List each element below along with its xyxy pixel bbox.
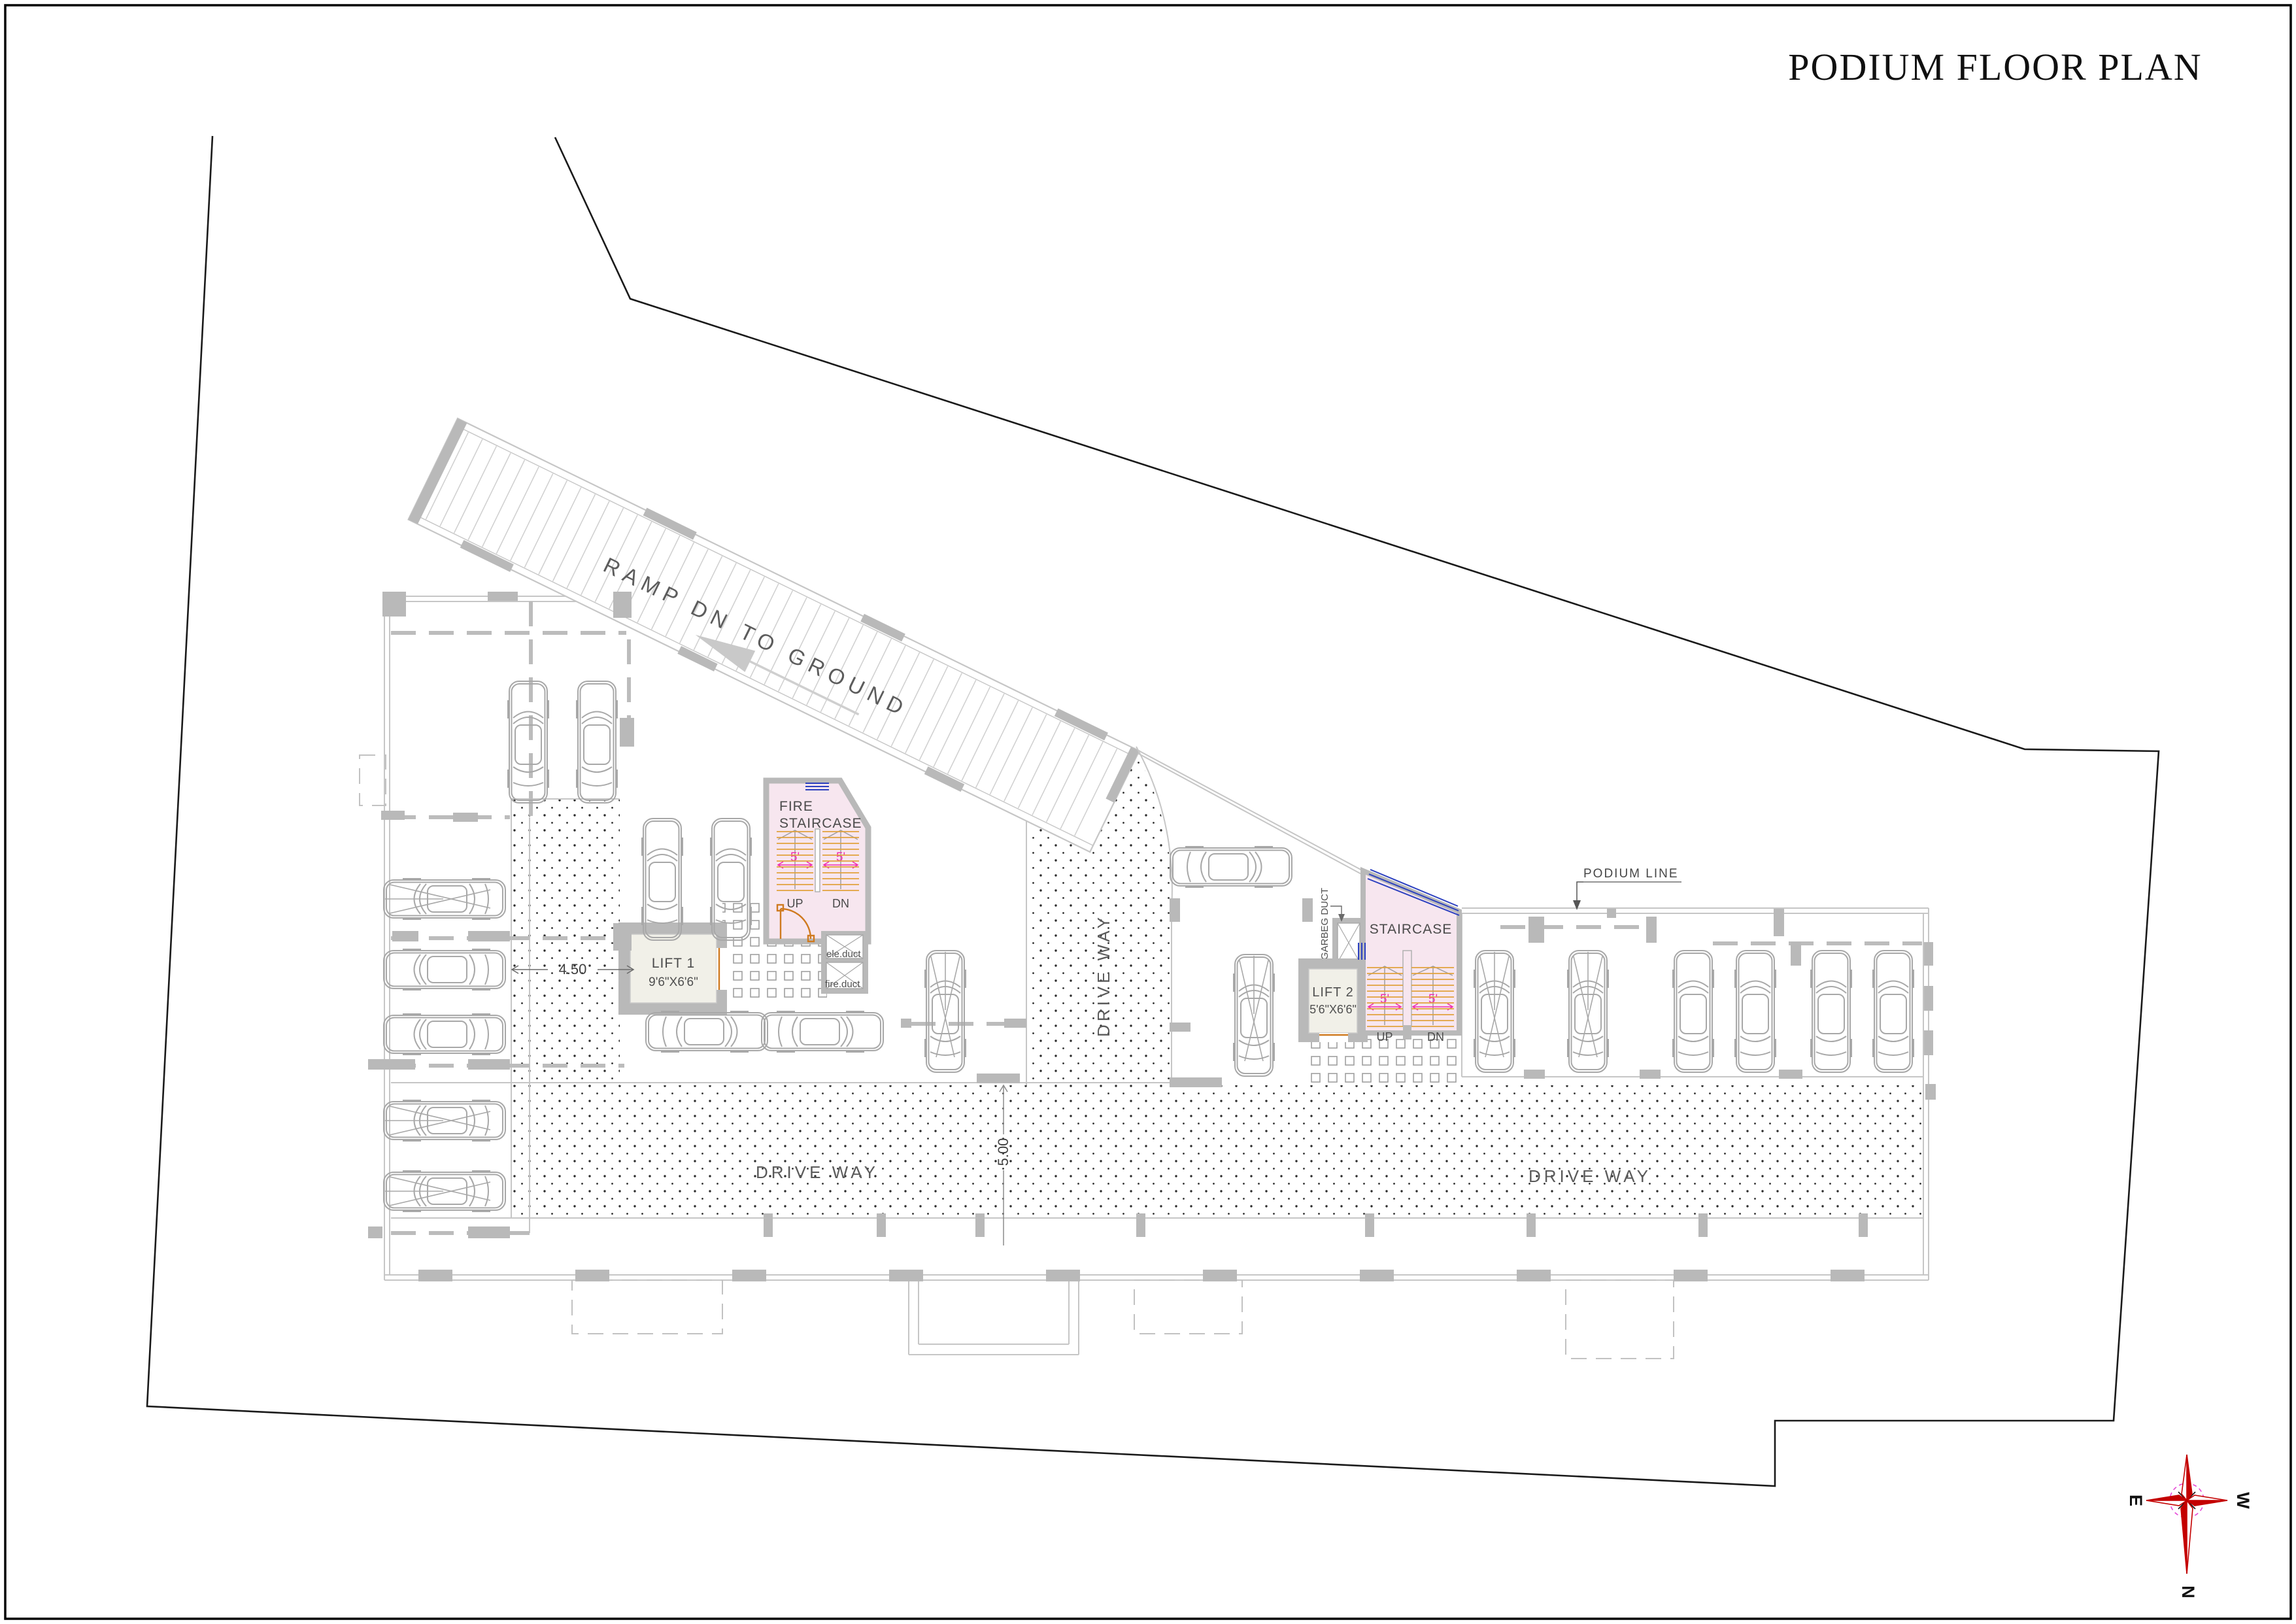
column <box>468 931 510 941</box>
fire-staircase-dn: DN <box>832 897 849 910</box>
column <box>1170 898 1180 922</box>
driveway-width-value: 5.00 <box>995 1138 1011 1166</box>
fire-duct-label: fire.duct <box>825 979 860 990</box>
staircase-flight-right: 5' <box>1428 992 1438 1006</box>
staircase-flight-left: 5' <box>1380 992 1389 1006</box>
column <box>381 811 405 820</box>
column <box>1517 1270 1551 1281</box>
driveway-label-bottom-right: DRIVE WAY <box>1528 1166 1651 1186</box>
column <box>418 1270 452 1281</box>
column <box>901 1019 911 1028</box>
column <box>1524 1070 1545 1079</box>
column <box>468 1226 510 1238</box>
column <box>368 1226 382 1238</box>
column <box>1365 1213 1374 1237</box>
column <box>732 1270 766 1281</box>
lift2-label: LIFT 2 <box>1312 985 1353 1000</box>
column <box>1640 1070 1661 1079</box>
column <box>382 592 406 617</box>
garbage-duct-label: GARBEG DUCT <box>1319 888 1330 960</box>
column <box>1646 917 1657 943</box>
column <box>613 923 632 951</box>
column <box>1774 909 1784 936</box>
fire-staircase-flight-right: 5' <box>836 851 845 864</box>
lift-2: LIFT 2 5'6"X6'6" <box>1298 958 1368 1042</box>
lift2-size: 5'6"X6'6" <box>1309 1003 1357 1016</box>
column <box>468 1059 510 1070</box>
column <box>620 718 634 747</box>
column <box>1046 1270 1080 1281</box>
floor-plan-canvas: PODIUM FLOOR PLAN <box>0 0 2296 1624</box>
column <box>392 931 418 941</box>
column <box>1004 1019 1026 1028</box>
lift1-size: 9'6"X6'6" <box>649 975 698 989</box>
lift1-label: LIFT 1 <box>652 956 695 971</box>
column <box>1203 1270 1237 1281</box>
column <box>975 1213 985 1237</box>
column <box>877 1213 886 1237</box>
fire-staircase-label-2: STAIRCASE <box>779 816 862 831</box>
column <box>1136 1213 1145 1237</box>
staircase-dn: DN <box>1427 1030 1444 1043</box>
compass-east: E <box>2126 1495 2146 1506</box>
column <box>1607 909 1616 918</box>
column <box>488 592 518 601</box>
column <box>977 1074 1020 1083</box>
lift-1: LIFT 1 9'6"X6'6" <box>618 922 727 1015</box>
column <box>1170 1077 1222 1087</box>
fire-staircase-up: UP <box>786 897 803 910</box>
column <box>1779 1070 1802 1079</box>
lobby-width-value: 4.50 <box>559 961 587 977</box>
staircase-label: STAIRCASE <box>1370 922 1452 937</box>
column <box>1925 1084 1936 1100</box>
column <box>1924 942 1933 966</box>
fire-staircase-label-1: FIRE <box>779 799 813 814</box>
column <box>1924 986 1933 1011</box>
column <box>1302 898 1313 922</box>
column <box>368 1059 415 1070</box>
column <box>1924 1030 1933 1055</box>
column <box>1674 1270 1708 1281</box>
column <box>1360 1270 1394 1281</box>
column <box>453 813 478 822</box>
podium-line-label: PODIUM LINE <box>1583 867 1679 881</box>
page-title: PODIUM FLOOR PLAN <box>1788 46 2202 88</box>
duct-shafts: ele.duct fire.duct <box>821 931 868 994</box>
column <box>1170 1023 1190 1032</box>
column <box>1528 917 1544 943</box>
fire-staircase-flight-left: 5' <box>790 851 800 864</box>
column <box>1859 1213 1868 1237</box>
driveway-label-vertical: DRIVE WAY <box>1094 914 1113 1037</box>
column <box>1698 1213 1708 1237</box>
column <box>764 1213 773 1237</box>
staircase-up: UP <box>1376 1030 1393 1043</box>
column <box>613 592 632 618</box>
drawing-sheet: PODIUM FLOOR PLAN <box>0 0 2296 1624</box>
column <box>1527 1213 1536 1237</box>
compass-west: W <box>2233 1492 2253 1509</box>
column <box>889 1270 923 1281</box>
driveway-label-bottom-left: DRIVE WAY <box>756 1162 879 1182</box>
column <box>1831 1270 1865 1281</box>
column <box>1791 942 1801 966</box>
column <box>575 1270 609 1281</box>
ele-duct-label: ele.duct <box>826 949 861 960</box>
compass-north: N <box>2178 1585 2198 1599</box>
